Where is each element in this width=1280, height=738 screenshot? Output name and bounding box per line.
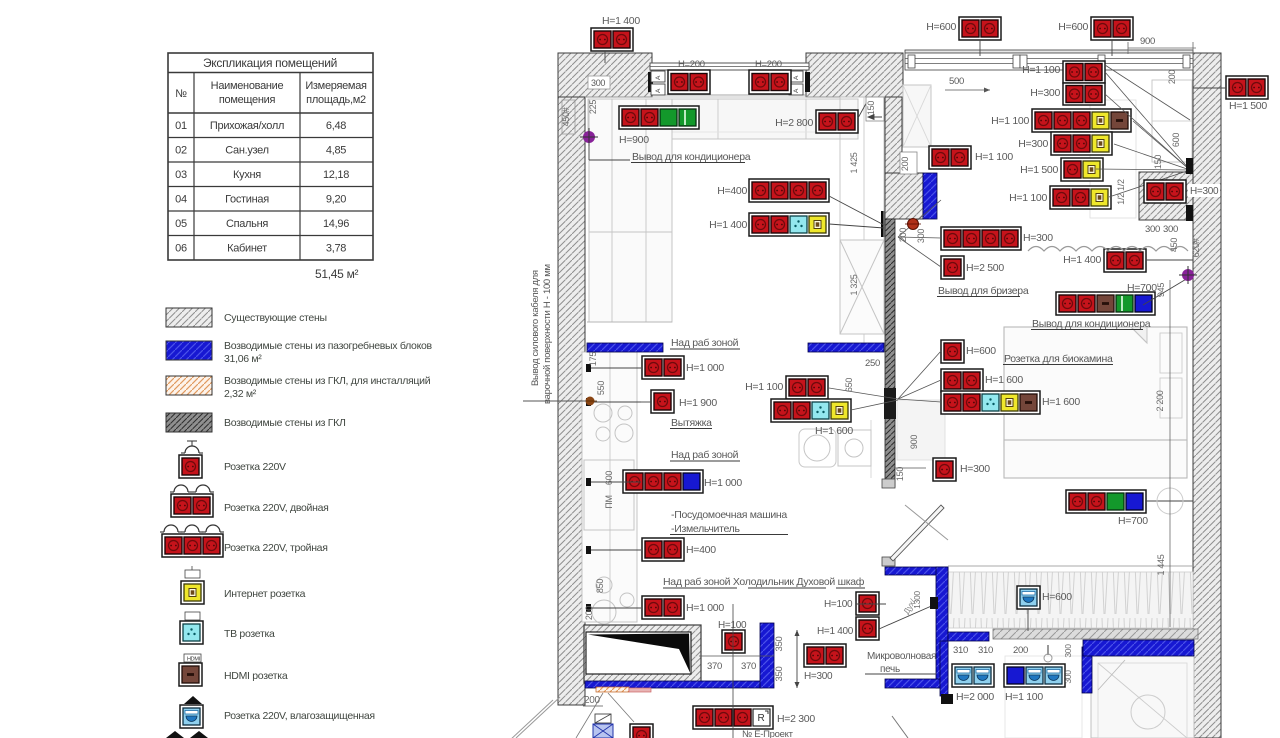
svg-text:H=900: H=900: [619, 134, 649, 146]
svg-text:площадь,м2: площадь,м2: [306, 94, 366, 106]
svg-text:02: 02: [175, 145, 187, 157]
svg-text:H=400: H=400: [717, 185, 747, 197]
svg-text:Возводимые стены из ГКЛ, для и: Возводимые стены из ГКЛ, для инсталляций: [224, 375, 431, 387]
svg-text:Возводимые стены из ГКЛ: Возводимые стены из ГКЛ: [224, 417, 346, 429]
svg-text:150: 150: [1153, 155, 1163, 169]
svg-text:Вытяжка: Вытяжка: [671, 417, 712, 429]
svg-text:Возводимые стены из пазогребне: Возводимые стены из пазогребневых блоков: [224, 340, 433, 352]
svg-text:H=2 500: H=2 500: [966, 262, 1004, 274]
svg-text:печь: печь: [880, 664, 900, 675]
svg-text:H=1 000: H=1 000: [704, 477, 742, 489]
svg-text:200: 200: [1013, 645, 1028, 656]
svg-text:Прихожая/холл: Прихожая/холл: [210, 120, 284, 132]
svg-text:4,85: 4,85: [326, 145, 346, 157]
svg-text:H=300: H=300: [1190, 186, 1219, 197]
svg-text:H=300: H=300: [1030, 87, 1060, 99]
svg-text:варочной поверхности Н - 100 м: варочной поверхности Н - 100 мм: [542, 264, 553, 404]
svg-text:HDMI розетка: HDMI розетка: [224, 670, 288, 682]
svg-text:6,48: 6,48: [326, 120, 346, 132]
svg-text:31,06 м²: 31,06 м²: [224, 353, 262, 365]
svg-text:310: 310: [953, 645, 968, 656]
svg-text:500: 500: [949, 76, 964, 87]
svg-text:H=300: H=300: [1023, 232, 1053, 244]
svg-text:Спальня: Спальня: [226, 218, 268, 230]
svg-text:Над раб зоной: Над раб зоной: [671, 337, 739, 349]
svg-text:51,45 м²: 51,45 м²: [315, 267, 359, 281]
svg-text:H=1 100: H=1 100: [975, 151, 1013, 163]
svg-text:850: 850: [595, 579, 605, 593]
svg-text:H=1 100: H=1 100: [1009, 192, 1047, 204]
svg-text:310: 310: [978, 645, 993, 656]
svg-text:Экспликация помещений: Экспликация помещений: [203, 56, 337, 70]
svg-text:H=1 600: H=1 600: [1042, 396, 1080, 408]
svg-text:№: №: [175, 88, 187, 100]
svg-text:H=1 400: H=1 400: [709, 219, 747, 231]
svg-text:H=100: H=100: [824, 599, 853, 610]
svg-text:300: 300: [1163, 224, 1178, 235]
svg-text:900: 900: [909, 435, 919, 449]
svg-text:H=1 500: H=1 500: [1020, 164, 1058, 176]
svg-text:H=2 300: H=2 300: [777, 713, 815, 725]
svg-text:Кабинет: Кабинет: [227, 243, 267, 255]
svg-text:450: 450: [1169, 238, 1179, 252]
svg-text:H=1 400: H=1 400: [817, 626, 854, 637]
svg-text:H=1 100: H=1 100: [1005, 691, 1043, 703]
svg-text:Над раб зоной: Над раб зоной: [671, 449, 739, 461]
svg-text:175: 175: [588, 352, 598, 366]
svg-text:14,96: 14,96: [323, 218, 349, 230]
svg-text:ПМ: ПМ: [604, 495, 614, 508]
svg-text:1 425: 1 425: [849, 152, 859, 173]
svg-text:370: 370: [707, 661, 722, 672]
svg-text:01: 01: [175, 120, 187, 132]
svg-text:Сан.узел: Сан.узел: [225, 145, 269, 157]
svg-text:H=600: H=600: [1058, 21, 1088, 33]
svg-text:H=600: H=600: [966, 345, 996, 357]
svg-text:H=200: H=200: [678, 59, 705, 70]
svg-text:2,32 м²: 2,32 м²: [224, 388, 257, 400]
svg-text:900: 900: [1140, 36, 1155, 47]
svg-text:04: 04: [175, 194, 187, 206]
svg-text:370: 370: [741, 661, 756, 672]
svg-text:200: 200: [898, 228, 908, 242]
svg-text:H=1 000: H=1 000: [686, 362, 724, 374]
svg-text:Розетка для биокамина: Розетка для биокамина: [1004, 353, 1113, 365]
svg-text:9,20: 9,20: [326, 194, 346, 206]
svg-text:200: 200: [1167, 70, 1177, 84]
svg-text:Розетка 220V, двойная: Розетка 220V, двойная: [224, 502, 329, 514]
svg-text:Вывод для бризера: Вывод для бризера: [938, 285, 1029, 297]
svg-text:300: 300: [916, 229, 926, 243]
svg-text:150: 150: [895, 467, 905, 481]
svg-text:-Измельчитель: -Измельчитель: [671, 523, 741, 535]
svg-text:№ Е-Проект: № Е-Проект: [742, 729, 794, 738]
svg-text:200: 200: [900, 157, 910, 171]
svg-text:650: 650: [844, 378, 854, 392]
svg-text:03: 03: [175, 169, 187, 181]
svg-text:H=1 100: H=1 100: [745, 381, 783, 393]
svg-text:Над раб зоной Холодильник Д: Над раб зоной Холодильник Духовой шкаф: [663, 576, 865, 588]
svg-text:1 325: 1 325: [849, 274, 859, 295]
svg-text:12,18: 12,18: [323, 169, 349, 181]
svg-text:300: 300: [1145, 224, 1160, 235]
svg-text:H=2 800: H=2 800: [775, 117, 813, 129]
svg-text:300: 300: [1063, 644, 1073, 658]
svg-text:05: 05: [175, 218, 187, 230]
svg-text:H=200: H=200: [755, 59, 782, 70]
svg-text:R: R: [758, 713, 765, 724]
svg-text:H=300: H=300: [960, 463, 990, 475]
svg-text:600: 600: [604, 471, 614, 485]
svg-text:Розетка 220V: Розетка 220V: [224, 461, 286, 473]
svg-text:Наименование: Наименование: [211, 80, 284, 92]
svg-text:Измеряемая: Измеряемая: [305, 80, 367, 92]
svg-text:помещения: помещения: [219, 94, 276, 106]
svg-text:350: 350: [774, 667, 785, 682]
svg-text:Существующие стены: Существующие стены: [224, 312, 327, 324]
svg-text:H=1 400: H=1 400: [1063, 254, 1101, 266]
svg-text:06: 06: [175, 243, 187, 255]
svg-text:620#: 620#: [1191, 238, 1201, 257]
svg-text:H=1 000: H=1 000: [686, 602, 724, 614]
svg-text:H=1 400: H=1 400: [602, 15, 640, 27]
svg-text:Микроволновая: Микроволновая: [867, 651, 936, 662]
svg-text:Вывод силового кабеля для: Вывод силового кабеля для: [530, 270, 541, 386]
svg-text:225: 225: [588, 100, 598, 114]
svg-text:ТВ розетка: ТВ розетка: [224, 628, 275, 640]
svg-text:H=600: H=600: [926, 21, 956, 33]
svg-text:945: 945: [1156, 283, 1166, 297]
svg-text:Розетка 220V, тройная: Розетка 220V, тройная: [224, 542, 328, 554]
svg-text:Интернет розетка: Интернет розетка: [224, 588, 306, 600]
svg-text:1 445: 1 445: [1156, 554, 1166, 575]
svg-text:Розетка 220V, влагозащищенная: Розетка 220V, влагозащищенная: [224, 710, 375, 722]
svg-text:H=400: H=400: [686, 544, 716, 556]
svg-text:H=2 000: H=2 000: [956, 691, 994, 703]
svg-text:450#: 450#: [561, 107, 571, 126]
svg-text:H=300: H=300: [1018, 138, 1048, 150]
svg-text:250: 250: [865, 358, 880, 369]
svg-text:3,78: 3,78: [326, 243, 346, 255]
svg-text:H=1 600: H=1 600: [985, 374, 1023, 386]
svg-text:H=1 600: H=1 600: [815, 425, 853, 437]
svg-text:H=1 100: H=1 100: [991, 115, 1029, 127]
svg-text:Вывод для кондиционера: Вывод для кондиционера: [1032, 318, 1151, 330]
svg-text:200: 200: [584, 695, 601, 706]
svg-text:HDMI: HDMI: [187, 657, 201, 663]
svg-text:2 200: 2 200: [1155, 390, 1165, 411]
svg-text:H=1 100: H=1 100: [1022, 64, 1060, 76]
svg-text:Гостиная: Гостиная: [225, 194, 269, 206]
svg-text:150: 150: [866, 101, 876, 115]
svg-text:H=600: H=600: [1042, 591, 1072, 603]
svg-text:300: 300: [591, 78, 605, 88]
svg-text:300: 300: [1063, 670, 1073, 684]
svg-text:H=1 500: H=1 500: [1229, 100, 1267, 112]
svg-text:200: 200: [584, 606, 594, 620]
svg-text:H=1 900: H=1 900: [679, 397, 717, 409]
svg-text:H=300: H=300: [804, 671, 833, 682]
svg-text:-Посудомоечная машина: -Посудомоечная машина: [671, 509, 787, 521]
svg-text:1/2 1/2: 1/2 1/2: [1116, 179, 1126, 205]
svg-text:Вывод для кондиционера: Вывод для кондиционера: [632, 151, 751, 163]
svg-text:550: 550: [596, 381, 606, 395]
svg-text:Кухня: Кухня: [233, 169, 261, 181]
svg-text:350: 350: [774, 637, 785, 652]
svg-text:H=700: H=700: [1118, 515, 1148, 527]
svg-text:600: 600: [1171, 133, 1181, 147]
